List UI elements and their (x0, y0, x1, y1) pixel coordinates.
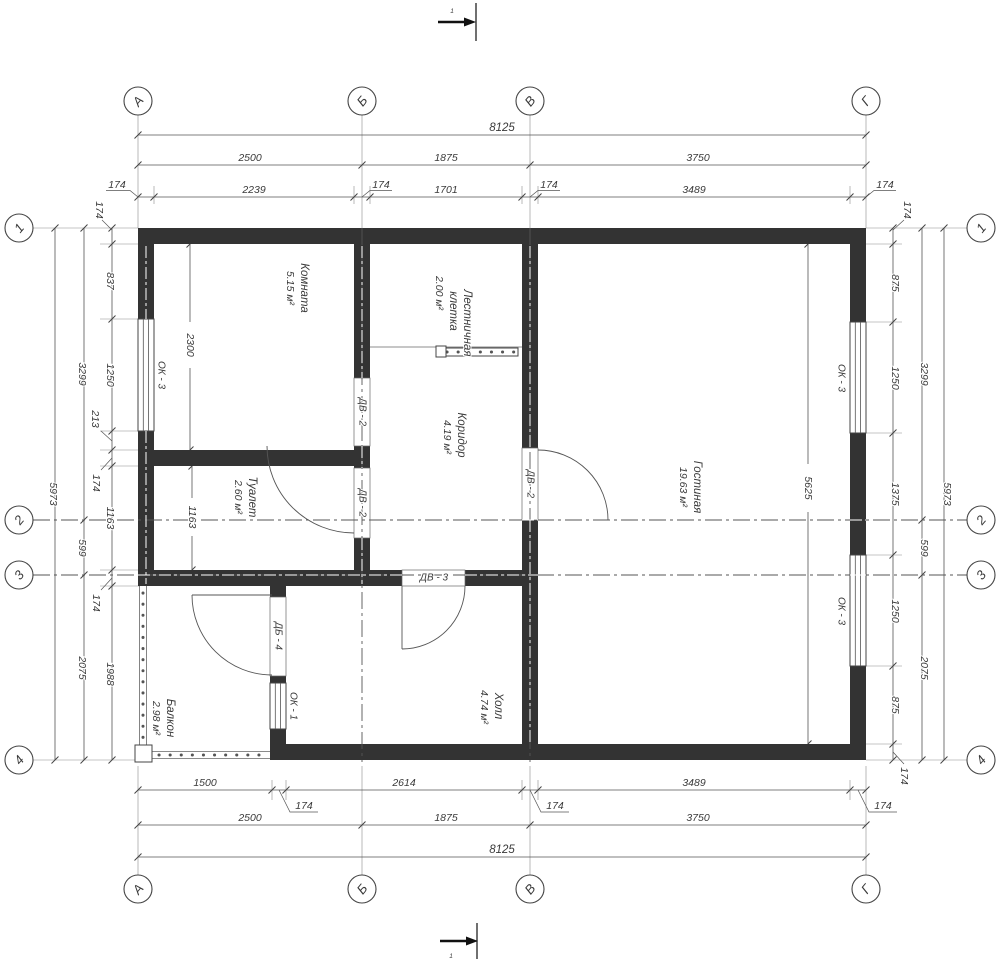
door-swing-hall (402, 586, 465, 649)
room-balkon-area: 2.98 м² (150, 700, 162, 736)
dim-interior-living: 5625 (802, 476, 814, 500)
window-frame (270, 683, 286, 729)
dim-right-detail-1: 875 (889, 274, 901, 292)
dim-bottom-total: 8125 (489, 844, 515, 856)
wall-bottom (270, 744, 866, 760)
dim-left-span-2: 2075 (76, 655, 88, 680)
label-db4-balcony: ДБ - 4 (273, 621, 284, 650)
dim-bottom-detail-1: 174 (295, 800, 313, 812)
label-ok1-balcony: ОК - 1 (288, 692, 299, 720)
dim-top-detail-5: 3489 (682, 184, 706, 196)
dim-interior-toilet: 1163 (186, 506, 198, 529)
dim-interior-komnata: 2300 (184, 332, 196, 357)
window-ok1-balcony (270, 683, 286, 729)
dim-top-detail-4: 174 (540, 179, 558, 191)
window-ok3-right-upper (850, 322, 866, 433)
label-ok3-right-lower: ОК - 3 (836, 597, 847, 626)
dim-top-detail-1: 2239 (241, 184, 266, 196)
dim-top-detail-3: 1701 (434, 184, 457, 196)
label-dv2-toilet: ДВ - 2 (357, 488, 368, 518)
wall-right-2 (850, 433, 866, 555)
dim-right-detail-6: 174 (898, 767, 910, 785)
dim-labels-left: 5973 3299 599 2075 174 837 1250 213 174 … (47, 201, 116, 686)
dim-bottom-detail-3: 174 (546, 800, 564, 812)
window-frame (850, 555, 866, 666)
door-openings (270, 378, 538, 676)
wall-hall-top-right (465, 570, 538, 586)
room-tualet-area: 2.60 м² (232, 479, 244, 515)
stair-rail-post (436, 346, 446, 357)
dim-left-detail-3: 213 (89, 409, 101, 428)
wall-top (138, 228, 866, 244)
room-koridor-area: 4.19 м² (441, 420, 453, 455)
balcony-railing (135, 586, 270, 762)
door-swing-balcony (192, 595, 272, 675)
dim-top-span-1: 1875 (434, 152, 458, 164)
dim-left-detail-0: 174 (93, 201, 105, 219)
label-dv3-hall: ДВ - 3 (419, 573, 449, 584)
window-ok3-right-lower (850, 555, 866, 666)
room-koridor-name: Коридор (455, 412, 467, 458)
dim-left-span-1: 599 (76, 539, 88, 557)
railing-corner-post (135, 745, 152, 762)
label-ok3-left: ОК - 3 (156, 361, 167, 390)
windows (138, 319, 866, 729)
floor-plan-drawing: 1 1 А Б В Г А Б В Г 1 (0, 0, 1000, 965)
window-frame (850, 322, 866, 433)
axis-centerlines (33, 228, 967, 762)
opening-labels: ОК - 3 ОК - 3 ОК - 3 ОК - 1 ДВ - 2 ДВ - … (156, 361, 847, 720)
room-holl-name: Холл (492, 692, 504, 720)
dim-top-total: 8125 (489, 122, 515, 134)
window-ok3-left (138, 319, 154, 431)
dim-right-span-1: 599 (918, 539, 930, 557)
dim-top-detail-2: 174 (372, 179, 390, 191)
section-arrow-head (464, 18, 476, 27)
dim-right-detail-2: 1250 (889, 366, 901, 390)
dim-top-detail-6: 174 (876, 179, 894, 191)
dim-right-detail-3: 1375 (889, 482, 901, 506)
section-number: 1 (450, 8, 454, 15)
room-staircase-name: Лестничная (461, 288, 473, 356)
dim-bottom-span-1: 1875 (434, 812, 458, 824)
room-holl-area: 4.74 м² (478, 690, 490, 725)
room-balkon-name: Балкон (164, 699, 176, 738)
dim-top-detail-0: 174 (108, 179, 126, 191)
dim-right-detail-4: 1250 (889, 599, 901, 623)
wall-balcony-1 (270, 586, 286, 597)
label-dv2-room: ДВ - 2 (357, 397, 368, 427)
section-arrow-head (466, 937, 478, 946)
dim-lines-left (55, 228, 112, 760)
room-tualet-name: Туалет (246, 477, 258, 518)
door-swing-living (538, 450, 608, 520)
dim-left-detail-4: 174 (90, 474, 102, 492)
dim-labels-interior: 2300 1163 5625 (184, 332, 814, 528)
wall-right-3 (850, 666, 866, 744)
room-labels: Комната 5.15 м² Лестничная клетка 2.00 м… (150, 263, 703, 738)
label-ok3-right-upper: ОК - 3 (836, 364, 847, 393)
dim-right-detail-5: 875 (889, 696, 901, 714)
label-dv2-living: ДВ - 2 (525, 469, 536, 499)
dim-left-detail-2: 1250 (104, 363, 116, 387)
dim-bottom-detail-4: 3489 (682, 777, 706, 789)
section-mark-top: 1 (438, 3, 476, 41)
dim-labels-top: 8125 2500 1875 3750 174 2239 174 1701 17… (108, 122, 894, 196)
room-staircase-name2: клетка (447, 291, 459, 331)
dim-right-span-2: 2075 (918, 655, 930, 680)
axis-bubble-labels: А Б В Г А Б В Г 1 2 3 4 1 2 3 4 (10, 93, 989, 898)
dim-right-span-0: 3299 (918, 362, 930, 386)
room-komnata-area: 5.15 м² (284, 271, 296, 306)
dim-top-span-0: 2500 (237, 152, 262, 164)
section-mark-bottom: 1 (440, 923, 478, 960)
dim-right-total: 5973 (941, 482, 953, 506)
window-frame (138, 319, 154, 431)
dim-left-span-0: 3299 (76, 362, 88, 386)
floor-plan-svg: 1 1 А Б В Г А Б В Г 1 (0, 0, 1000, 965)
dim-bottom-span-2: 3750 (686, 812, 710, 824)
dim-left-detail-1: 837 (104, 272, 116, 291)
room-gostinaya-name: Гостиная (691, 461, 703, 514)
wall-right-1 (850, 228, 866, 322)
wall-balcony-3 (270, 729, 286, 744)
room-komnata-name: Комната (298, 263, 310, 313)
dim-bottom-detail-2: 2614 (391, 777, 416, 789)
section-number: 1 (449, 953, 453, 960)
dim-left-detail-7: 1988 (104, 662, 116, 686)
room-gostinaya-area: 19.63 м² (677, 467, 689, 507)
dim-labels-bottom: 1500 174 2614 174 3489 174 2500 1875 375… (193, 777, 892, 856)
staircase (370, 346, 522, 357)
dim-bottom-detail-5: 174 (874, 800, 892, 812)
dim-left-total: 5973 (47, 482, 59, 506)
dim-left-detail-6: 174 (90, 594, 102, 612)
dim-left-detail-5: 1163 (104, 507, 116, 530)
dim-bottom-span-0: 2500 (237, 812, 262, 824)
wall-toilet-top (138, 450, 370, 466)
wall-balcony-2 (270, 676, 286, 683)
dim-right-detail-0: 174 (901, 201, 913, 219)
room-staircase-area: 2.00 м² (433, 275, 445, 311)
dim-labels-right: 5973 3299 599 2075 174 875 1250 1375 125… (889, 201, 953, 785)
dim-bottom-detail-0: 1500 (193, 777, 217, 789)
dim-top-span-2: 3750 (686, 152, 710, 164)
